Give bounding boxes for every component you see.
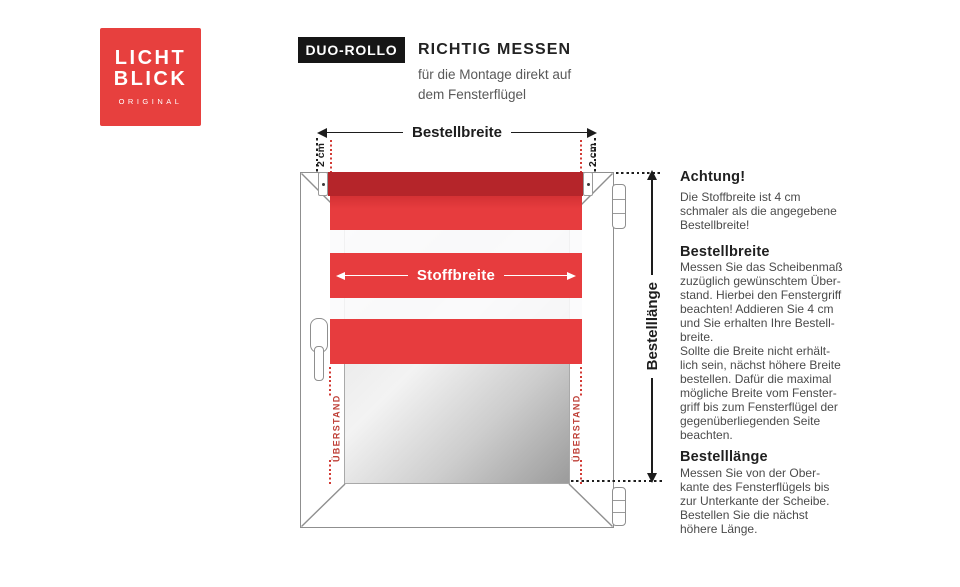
- product-badge: DUO-ROLLO: [298, 37, 405, 63]
- text-line: gegenüberliegenden Seite: [680, 414, 850, 428]
- text-line: Bestellen Sie die nächst: [680, 508, 850, 522]
- text-line: Messen Sie von der Ober-: [680, 466, 850, 480]
- fabric-stripe-1: [330, 196, 582, 230]
- roller-bracket-right: [583, 172, 593, 196]
- text-line: und Sie erhalten Ihre Bestell-: [680, 316, 850, 330]
- window-hinge-top: [612, 184, 626, 229]
- arrowhead-left-icon: [336, 272, 345, 280]
- text-line: kante des Fensterflügels bis: [680, 480, 850, 494]
- bracket-screw-icon: [322, 183, 325, 186]
- window-handle-grip: [314, 346, 324, 381]
- section-heading-bestellbreite: Bestellbreite: [680, 244, 850, 260]
- text-line: dem Fensterflügel: [418, 85, 571, 105]
- arrowhead-right-icon: [587, 128, 597, 138]
- offset-label-left: 2 cm: [313, 140, 329, 171]
- roller-bracket-left: [318, 172, 328, 196]
- section-heading-bestelllaenge: Bestelllänge: [680, 449, 850, 465]
- text-line: lich sein, nächst höhere Breite: [680, 358, 850, 372]
- text-line: Sollte die Breite nicht erhält-: [680, 344, 850, 358]
- fabric-stripe-3: [330, 319, 582, 364]
- brand-name-line2: BLICK: [114, 69, 188, 90]
- text-line: beachten! Addieren Sie 4 cm: [680, 302, 850, 316]
- arrowhead-down-icon: [647, 473, 657, 483]
- section-text-bestelllaenge: Messen Sie von der Ober-kante des Fenste…: [680, 466, 850, 536]
- roller-tube-body: [328, 172, 583, 196]
- text-line: griff bis zum Fensterflügel der: [680, 400, 850, 414]
- text-line: stand. Hierbei den Fenstergriff: [680, 288, 850, 302]
- arrowhead-left-icon: [317, 128, 327, 138]
- text-line: breite.: [680, 330, 850, 344]
- text-line: Bestellbreite!: [680, 218, 850, 232]
- order-length-label: Bestelllänge: [644, 282, 661, 370]
- text-line: für die Montage direkt auf: [418, 65, 571, 85]
- text-line: höhere Länge.: [680, 522, 850, 536]
- brand-tagline: ORIGINAL: [119, 97, 183, 106]
- fabric-sheer-band-2: [330, 298, 582, 319]
- arrowhead-up-icon: [647, 170, 657, 180]
- section-text-bestellbreite: Messen Sie das Scheibenmaßzuzüglich gewü…: [680, 260, 850, 442]
- fabric-sheer-band-1: [330, 230, 582, 253]
- overhang-label-left: ÜBERSTAND: [330, 398, 343, 459]
- text-line: bestellen. Dafür die maximal: [680, 372, 850, 386]
- guide-dotted-red-right: [580, 140, 582, 172]
- text-line: beachten.: [680, 428, 850, 442]
- guide-dotted-red-left: [330, 140, 332, 172]
- overhang-dotted-left-lower: [329, 460, 331, 484]
- fabric-stripe-2: Stoffbreite: [330, 253, 582, 298]
- brand-logo: LICHT BLICK ORIGINAL: [100, 28, 201, 126]
- order-width-label: Bestellbreite: [412, 124, 502, 141]
- overhang-dotted-left-upper: [329, 367, 331, 398]
- roller-tube: [318, 172, 593, 196]
- bracket-screw-icon: [587, 183, 590, 186]
- fabric-width-label: Stoffbreite: [417, 267, 495, 284]
- text-line: Die Stoffbreite ist 4 cm: [680, 190, 850, 204]
- text-line: zuzüglich gewünschtem Über-: [680, 274, 850, 288]
- overhang-label-right: ÜBERSTAND: [570, 398, 583, 459]
- text-line: mögliche Breite vom Fenster-: [680, 386, 850, 400]
- brand-name-line1: LICHT: [115, 48, 186, 69]
- arrowhead-right-icon: [567, 272, 576, 280]
- text-line: zur Unterkante der Scheibe.: [680, 494, 850, 508]
- page: LICHT BLICK ORIGINAL DUO-ROLLO RICHTIG M…: [0, 0, 960, 587]
- section-heading-achtung: Achtung!: [680, 169, 850, 185]
- section-text-achtung: Die Stoffbreite ist 4 cmschmaler als die…: [680, 190, 850, 232]
- offset-label-right: 2 cm: [585, 140, 601, 171]
- text-line: schmaler als die angegebene: [680, 204, 850, 218]
- order-length-arrow: Bestelllänge: [645, 170, 659, 483]
- order-width-arrow: Bestellbreite: [317, 126, 597, 139]
- page-title: RICHTIG MESSEN: [418, 41, 571, 59]
- overhang-dotted-right-upper: [580, 367, 582, 398]
- window-hinge-bottom: [612, 487, 626, 526]
- page-subtitle: für die Montage direkt aufdem Fensterflü…: [418, 65, 571, 104]
- text-line: Messen Sie das Scheibenmaß: [680, 260, 850, 274]
